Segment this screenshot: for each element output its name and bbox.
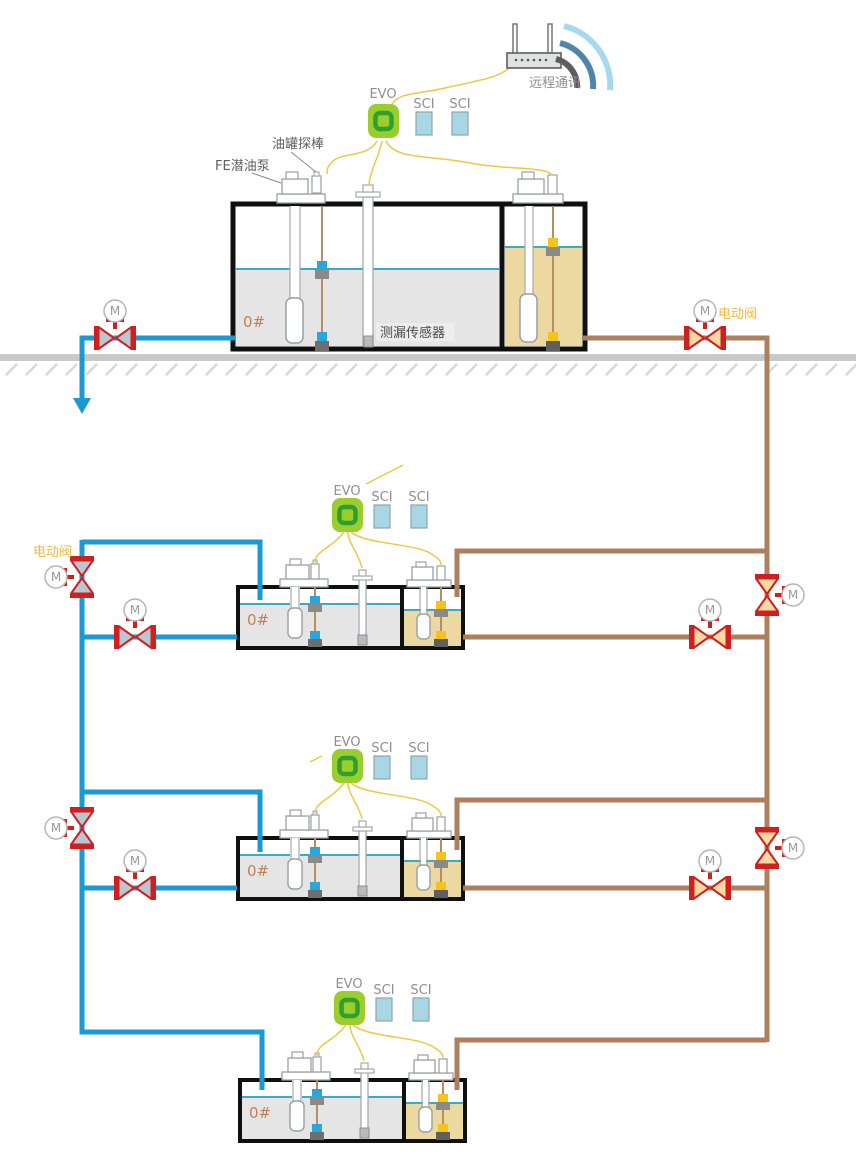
- motor-label: M: [700, 304, 710, 318]
- motor-label: M: [788, 841, 798, 855]
- motor-label: M: [51, 570, 61, 584]
- return-pipeline-brown: [457, 338, 767, 1090]
- station-1-signal-wires: [327, 67, 552, 185]
- sci-label: SCI: [371, 490, 392, 505]
- motor-label: M: [788, 588, 798, 602]
- sci-module-icon: [411, 505, 427, 528]
- pipeline-monitoring-diagram: EVO SCI SCI 0# EVO SCI SCI 0# EVO SCI: [0, 0, 856, 1154]
- sci-module-icon: [374, 756, 390, 779]
- fe-pump-label: FE潜油泵: [215, 159, 270, 174]
- electric-valve-label: 电动阀: [33, 545, 72, 560]
- ground-line: [0, 354, 856, 375]
- evo-label: EVO: [335, 977, 362, 992]
- station-2: EVO SCI SCI 0#: [238, 465, 463, 648]
- flow-arrow-down-icon: [73, 398, 91, 414]
- sci-module-icon: [452, 112, 468, 135]
- leak-sensor-label: 测漏传感器: [380, 325, 445, 341]
- motorized-valve-icon: [684, 318, 726, 350]
- antenna-icon: [513, 24, 517, 54]
- sci-module-icon: [376, 998, 392, 1021]
- evo-controller-icon: [334, 991, 365, 1025]
- motor-label: M: [130, 854, 140, 868]
- motor-label: M: [705, 603, 715, 617]
- evo-label: EVO: [333, 735, 360, 750]
- tank-probe-label: 油罐探棒: [272, 137, 324, 152]
- sci-label: SCI: [408, 490, 429, 505]
- motor-label: M: [705, 854, 715, 868]
- motorized-valve-icon: [114, 868, 156, 900]
- sci-label: SCI: [371, 741, 392, 756]
- fuel-grade-label: 0#: [247, 862, 269, 880]
- fuel-tank: [240, 1052, 465, 1141]
- sci-module-icon: [374, 505, 390, 528]
- station-3: EVO SCI SCI 0#: [238, 735, 463, 899]
- electric-valve-label: 电动阀: [718, 307, 757, 322]
- sci-label: SCI: [408, 741, 429, 756]
- fuel-grade-label: 0#: [249, 1104, 271, 1122]
- sci-module-icon: [413, 998, 429, 1021]
- evo-controller-icon: [368, 104, 399, 138]
- supply-pipeline-blue: [82, 338, 262, 1090]
- sci-module-icon: [416, 112, 432, 135]
- motorized-valve-icon: [689, 617, 731, 649]
- sci-label: SCI: [413, 97, 434, 112]
- station-4: EVO SCI SCI 0#: [240, 977, 465, 1141]
- motorized-valve-icon: [114, 617, 156, 649]
- sci-label: SCI: [449, 97, 470, 112]
- fuel-grade-label: 0#: [243, 313, 265, 331]
- sci-label: SCI: [410, 983, 431, 998]
- antenna-icon: [548, 24, 552, 54]
- evo-controller-icon: [332, 749, 363, 783]
- sci-module-icon: [411, 756, 427, 779]
- motor-label: M: [51, 821, 61, 835]
- motor-label: M: [110, 304, 120, 318]
- fuel-tank: [238, 810, 463, 899]
- fuel-tank: [238, 559, 463, 648]
- evo-label: EVO: [333, 484, 360, 499]
- remote-comm-unit: 远程通讯: [507, 24, 610, 91]
- evo-label: EVO: [369, 87, 396, 102]
- motor-label: M: [130, 603, 140, 617]
- sci-label: SCI: [373, 983, 394, 998]
- motorized-valve-icon: [689, 868, 731, 900]
- ground-hatching: [6, 364, 856, 375]
- fuel-grade-label: 0#: [247, 611, 269, 629]
- evo-controller-icon: [332, 498, 363, 532]
- remote-comm-label: 远程通讯: [529, 76, 581, 91]
- motorized-valve-icon: [94, 318, 136, 350]
